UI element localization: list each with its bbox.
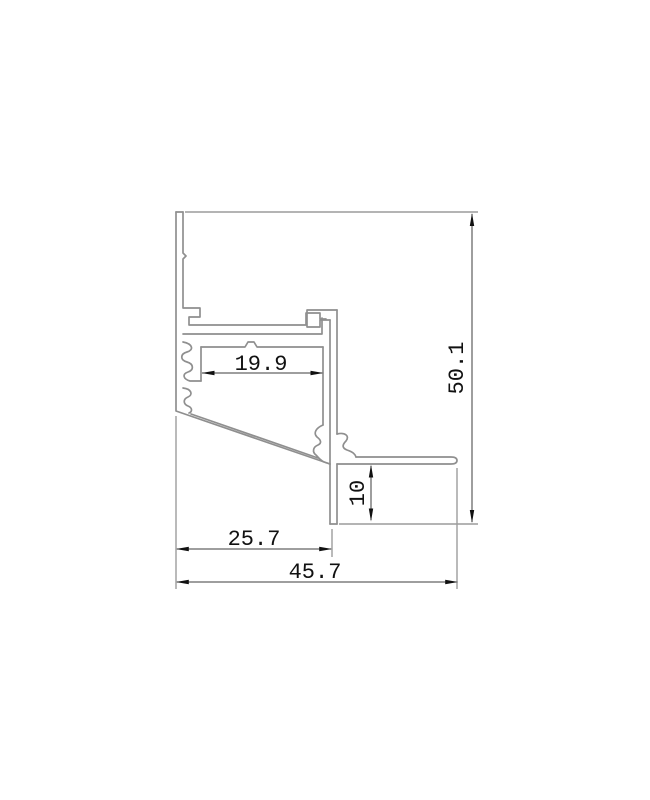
arrow-left-icon (176, 580, 189, 584)
slot-top-edge (201, 342, 323, 347)
arrow-left-icon (176, 547, 189, 551)
arrow-left-icon (202, 371, 215, 375)
profile-outline (176, 212, 457, 524)
dimension-label-left-width: 25.7 (228, 527, 281, 552)
arrow-right-icon (311, 371, 324, 375)
dimension-label-total-width: 45.7 (289, 560, 342, 585)
dimension-label-total-height: 50.1 (445, 342, 470, 395)
flange-outline (337, 457, 457, 464)
dimension-label-leg-height: 10 (346, 480, 371, 506)
arrow-right-icon (319, 547, 332, 551)
arrow-down-icon (470, 510, 474, 523)
arrow-down-icon (369, 509, 373, 522)
lower-clip-detail (183, 388, 192, 413)
dimension-total-width: 45.7 (176, 560, 458, 585)
shelf-bottom-edge (183, 318, 322, 334)
dimension-total-height: 50.1 (445, 213, 474, 523)
arrow-right-icon (445, 580, 458, 584)
wall-outer-edge (176, 212, 330, 464)
profile-drawing: 19.9 50.1 10 25.7 45.7 (0, 0, 650, 800)
upper-clip-detail (182, 342, 201, 381)
dimension-left-width: 25.7 (176, 527, 332, 552)
dimension-label-slot-width: 19.9 (235, 352, 288, 377)
dimension-slot-width: 19.9 (202, 352, 324, 377)
arrow-up-icon (369, 465, 373, 478)
inner-diagonal (191, 414, 318, 458)
arrow-up-icon (470, 213, 474, 226)
technical-drawing-page: 19.9 50.1 10 25.7 45.7 (0, 0, 650, 800)
extension-lines (176, 212, 478, 589)
dimension-leg-height: 10 (346, 465, 373, 522)
center-right-clip-detail (337, 433, 356, 457)
wall-inner-edge (183, 212, 326, 325)
